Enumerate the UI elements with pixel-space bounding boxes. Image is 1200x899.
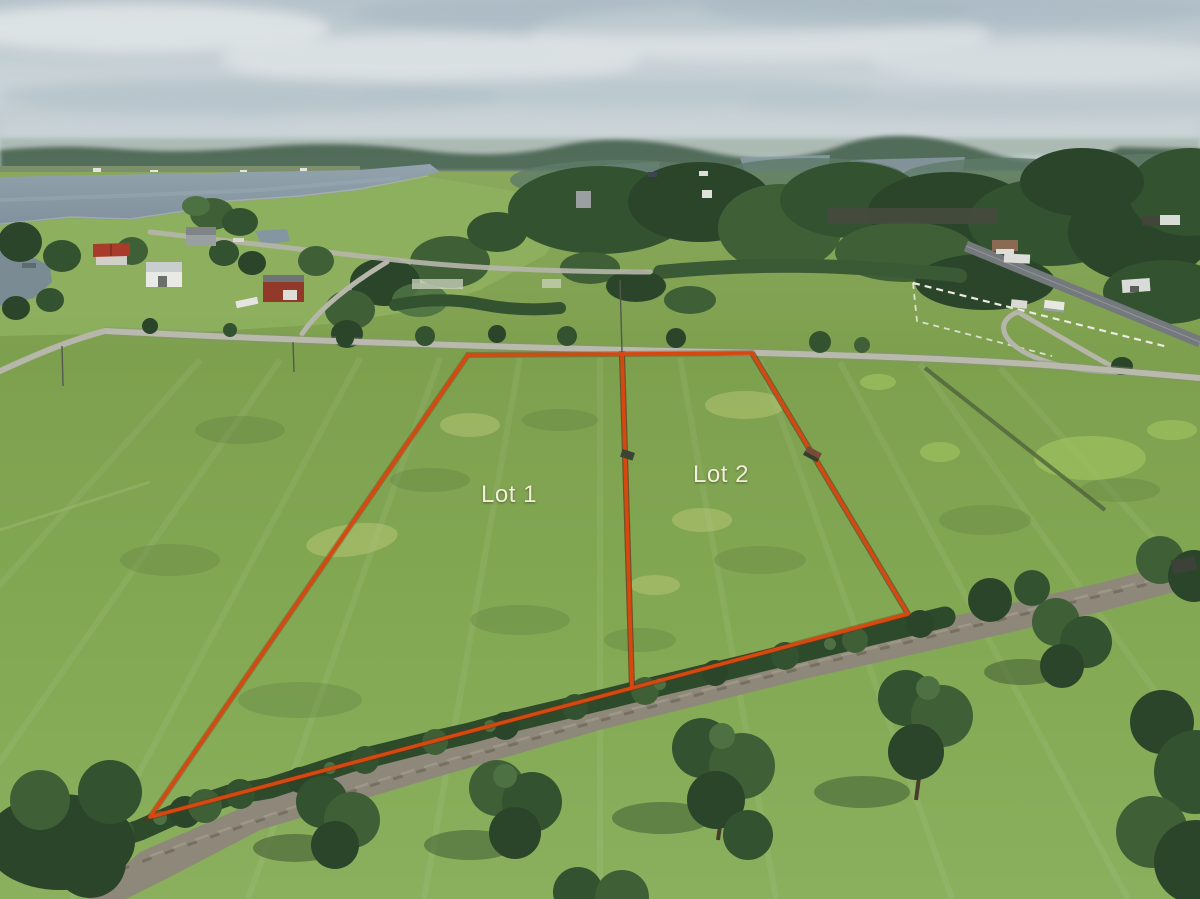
gray-building xyxy=(576,191,591,208)
white-house xyxy=(702,190,712,198)
white-barn xyxy=(146,262,182,287)
plowed-field xyxy=(828,208,998,224)
gray-house xyxy=(186,227,216,246)
parked-car-white xyxy=(699,171,708,176)
white-roadside-barn xyxy=(1122,278,1151,293)
aerial-photo: Lot 1 Lot 2 xyxy=(0,0,1200,899)
parked-car-dark xyxy=(648,172,657,177)
lot1-label: Lot 1 xyxy=(481,481,537,508)
concrete-pad-1 xyxy=(412,279,463,289)
clouds xyxy=(0,0,1200,160)
aerial-photo-canvas: Lot 1 Lot 2 xyxy=(0,0,1200,899)
concrete-pad-2 xyxy=(542,279,561,288)
red-barn xyxy=(263,275,304,302)
red-roof-house xyxy=(93,243,130,265)
boat-on-grass xyxy=(1011,299,1028,309)
lot2-label: Lot 2 xyxy=(693,461,749,488)
